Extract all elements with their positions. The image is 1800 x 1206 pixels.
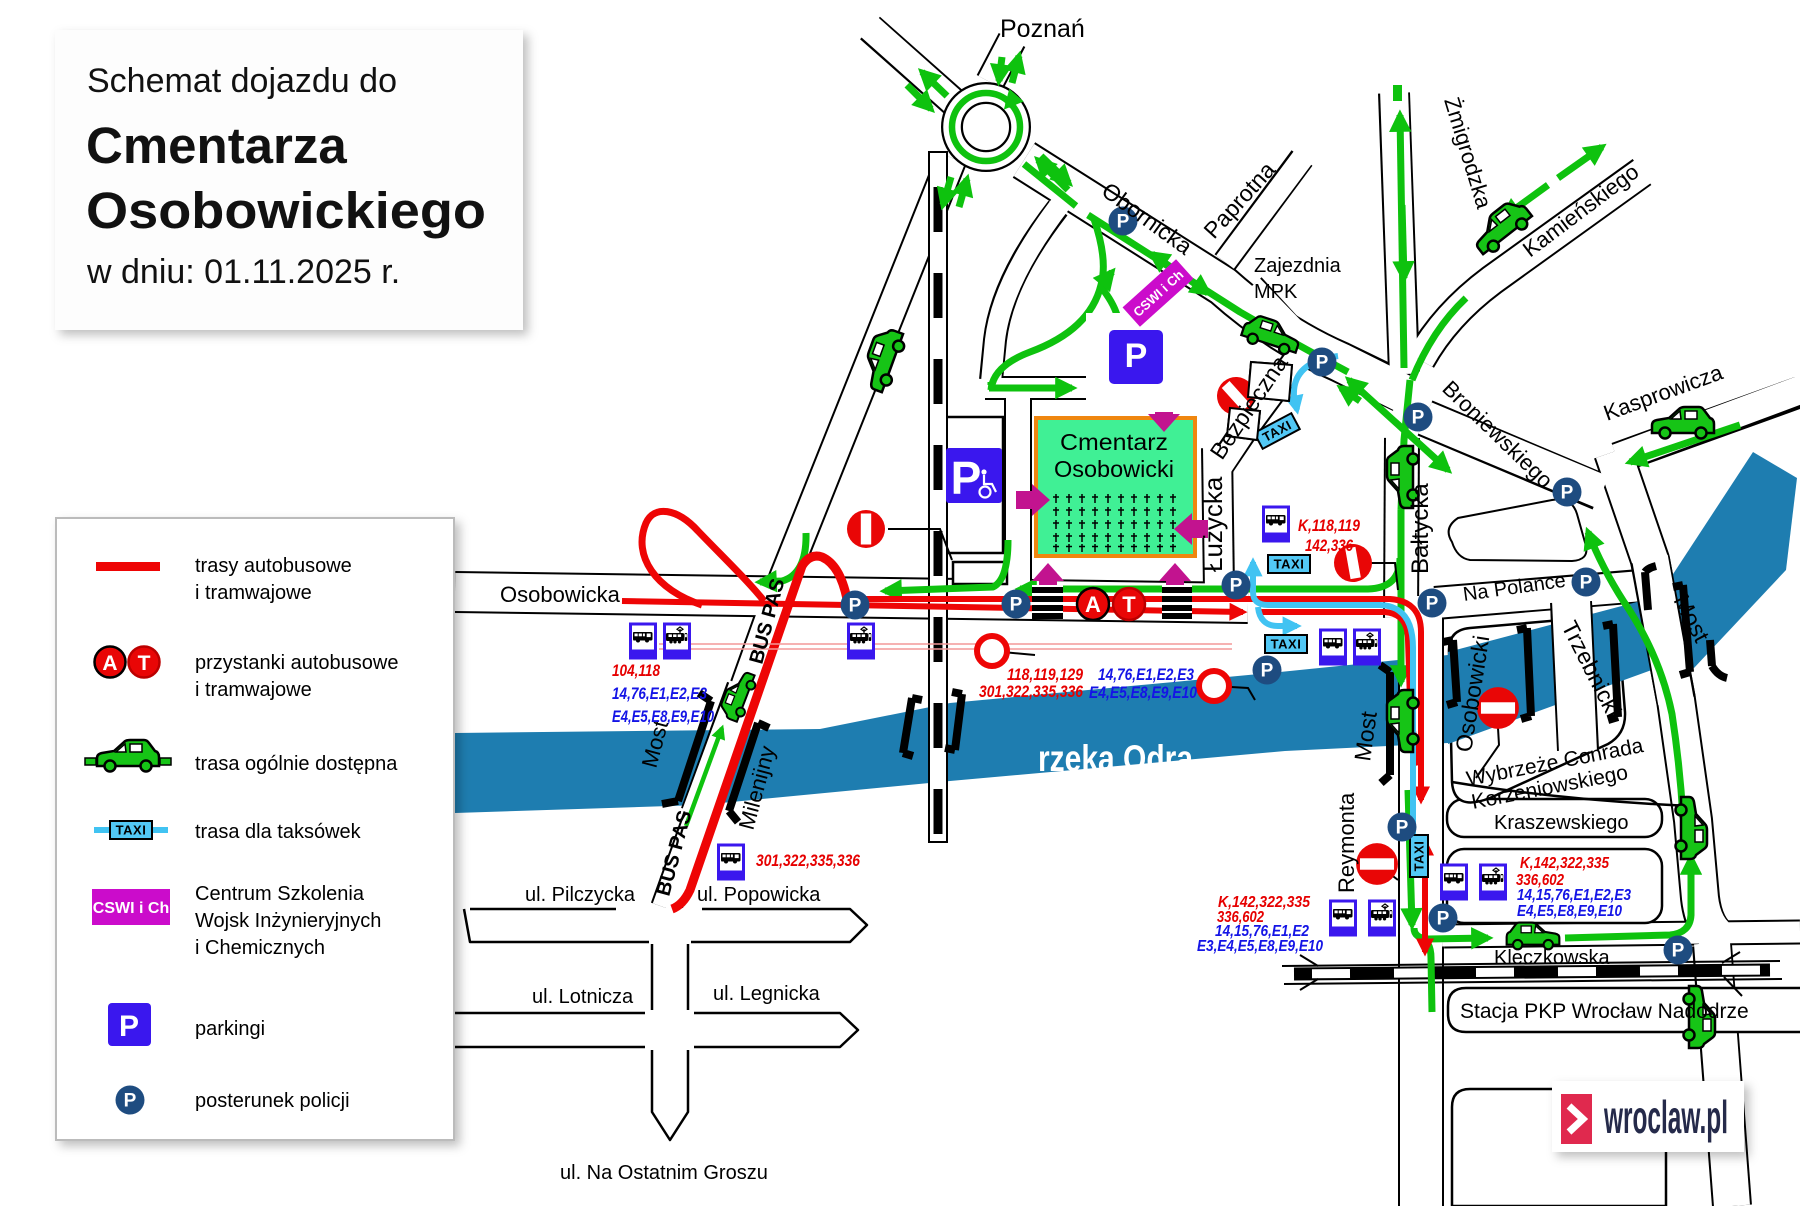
- svg-text:104,118: 104,118: [612, 661, 660, 680]
- svg-text:wroclaw.pl: wroclaw.pl: [1603, 1091, 1728, 1143]
- svg-text:Osobowicka: Osobowicka: [500, 582, 621, 607]
- svg-text:rzeka Odra: rzeka Odra: [1038, 738, 1193, 779]
- svg-text:T: T: [138, 652, 151, 675]
- svg-text:MPK: MPK: [1254, 281, 1298, 303]
- svg-text:w dniu: 01.11.2025 r.: w dniu: 01.11.2025 r.: [86, 253, 400, 291]
- svg-text:Kraszewskiego: Kraszewskiego: [1494, 812, 1629, 834]
- svg-text:trasa ogólnie dostępna: trasa ogólnie dostępna: [195, 753, 398, 775]
- svg-text:T: T: [1122, 592, 1136, 617]
- svg-text:P: P: [119, 1010, 139, 1043]
- svg-text:E4,E5,E8,E9,E10: E4,E5,E8,E9,E10: [1089, 683, 1197, 702]
- svg-text:Osobowicki: Osobowicki: [1054, 456, 1174, 482]
- svg-text:A: A: [1085, 592, 1101, 617]
- svg-text:142,336: 142,336: [1305, 536, 1353, 555]
- svg-text:E3,E4,E5,E8,E9,E10: E3,E4,E5,E8,E9,E10: [1197, 938, 1323, 955]
- svg-text:Bałtycka: Bałtycka: [1407, 483, 1434, 574]
- svg-text:A: A: [102, 652, 117, 675]
- svg-text:Cmentarza: Cmentarza: [86, 117, 347, 174]
- svg-text:przystanki autobusowe: przystanki autobusowe: [195, 652, 398, 674]
- svg-text:Zajezdnia: Zajezdnia: [1254, 255, 1342, 277]
- svg-text:parkingi: parkingi: [195, 1018, 265, 1040]
- svg-text:14,76,E1,E2,E3: 14,76,E1,E2,E3: [612, 684, 707, 703]
- svg-text:Cmentarz: Cmentarz: [1060, 429, 1168, 455]
- svg-text:ul. Popowicka: ul. Popowicka: [697, 884, 821, 906]
- svg-text:301,322,335,336: 301,322,335,336: [756, 851, 860, 870]
- svg-text:i tramwajowe: i tramwajowe: [195, 582, 312, 604]
- svg-text:Centrum Szkolenia: Centrum Szkolenia: [195, 883, 365, 905]
- svg-text:14,76,E1,E2,E3: 14,76,E1,E2,E3: [1098, 665, 1194, 684]
- svg-text:P: P: [951, 452, 982, 504]
- svg-text:i Chemicznych: i Chemicznych: [195, 937, 325, 959]
- svg-text:Osobowickiego: Osobowickiego: [86, 182, 486, 239]
- svg-text:Kleczkowska: Kleczkowska: [1494, 947, 1610, 969]
- svg-text:trasa dla taksówek: trasa dla taksówek: [195, 821, 362, 843]
- svg-text:ul. Legnicka: ul. Legnicka: [713, 983, 821, 1005]
- svg-text:E4,E5,E8,E9,E10: E4,E5,E8,E9,E10: [612, 707, 714, 726]
- svg-text:Reymonta: Reymonta: [1334, 792, 1359, 893]
- svg-text:ul. Lotnicza: ul. Lotnicza: [532, 986, 634, 1008]
- svg-text:E4,E5,E8,E9,E10: E4,E5,E8,E9,E10: [1517, 903, 1622, 920]
- svg-text:14,15,76,E1,E2,E3: 14,15,76,E1,E2,E3: [1517, 887, 1631, 904]
- svg-text:CSWI i Ch: CSWI i Ch: [93, 900, 169, 917]
- svg-text:K,118,119: K,118,119: [1298, 516, 1360, 535]
- svg-text:Wojsk Inżynieryjnych: Wojsk Inżynieryjnych: [195, 910, 381, 932]
- svg-text:i tramwajowe: i tramwajowe: [195, 679, 312, 701]
- svg-text:ul. Na Ostatnim Groszu: ul. Na Ostatnim Groszu: [560, 1162, 768, 1184]
- svg-text:Stacja PKP Wrocław Nadodrze: Stacja PKP Wrocław Nadodrze: [1460, 1000, 1749, 1023]
- svg-text:K,142,322,335: K,142,322,335: [1520, 855, 1610, 872]
- svg-text:301,322,335,336: 301,322,335,336: [979, 682, 1083, 701]
- svg-text:posterunek policji: posterunek policji: [195, 1090, 350, 1112]
- svg-text:Łużycka: Łużycka: [1198, 476, 1228, 572]
- svg-text:trasy autobusowe: trasy autobusowe: [195, 555, 352, 577]
- svg-text:Schemat dojazdu do: Schemat dojazdu do: [87, 62, 397, 100]
- svg-text:Poznań: Poznań: [1000, 15, 1085, 43]
- svg-text:ul. Pilczycka: ul. Pilczycka: [525, 884, 636, 906]
